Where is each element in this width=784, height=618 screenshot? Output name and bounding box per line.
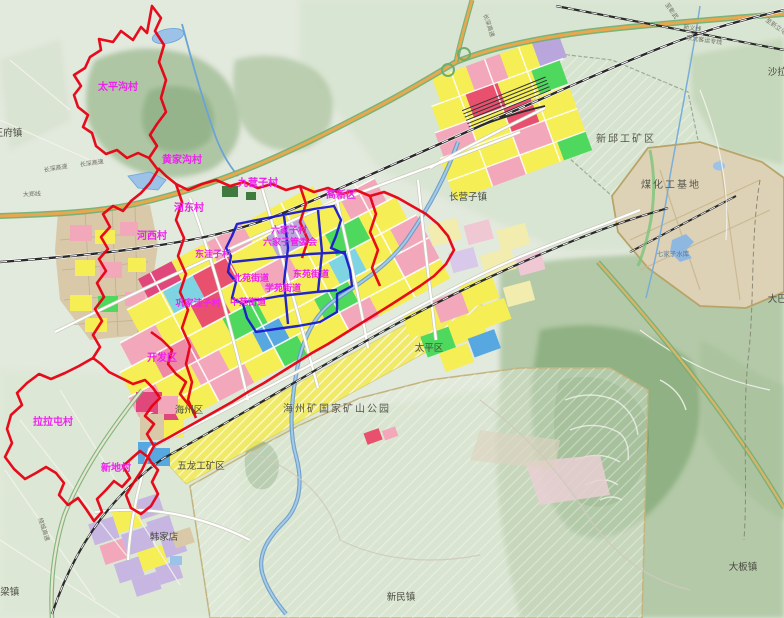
label-daban: 大板镇 [729,561,758,573]
planning-map-viewport: 太平沟村 黄家沟村 九营子村 河东村 河西村 六家子村 六家子管委会 东洼子村 … [0,0,784,618]
planning-map: 太平沟村 黄家沟村 九营子村 河东村 河西村 六家子村 六家子管委会 东洼子村 … [0,0,784,618]
label-daba: 大巴镇 [768,293,784,305]
pond-south [170,556,182,565]
label-gaoxin: 高新区 [326,188,356,201]
label-beiyuan: 北苑街道 [233,272,269,283]
label-meihua-zone: 煤化工基地 [641,178,701,191]
label-dongyuan: 东苑街道 [293,268,329,279]
label-hedong: 河东村 [174,201,204,214]
label-hexi: 河西村 [137,229,167,242]
label-liujiazi-mc: 六家子管委会 [263,236,318,247]
label-xindi: 新地村 [101,461,131,474]
label-liujiazi: 六家子村 [271,224,307,235]
label-changyingzi: 长营子镇 [449,191,488,203]
label-wulong-zone: 五龙工矿区 [177,460,225,472]
label-xueyuan: 学苑街道 [265,282,301,293]
label-jiuyingzi: 九营子村 [237,176,278,189]
label-taiping-qu: 太平区 [415,342,444,354]
label-kaifa: 开发区 [147,351,177,364]
label-dongliang: 东梁镇 [0,586,20,598]
label-xinmin: 新民镇 [387,591,416,603]
label-lalatun: 拉拉屯村 [33,415,73,428]
label-xinqiu-zone: 新邱工矿区 [596,132,656,145]
label-taipinggou: 太平沟村 [97,80,138,93]
label-dongwazi: 东洼子村 [195,248,231,259]
label-wangfu: 王府镇 [0,127,23,139]
label-shala: 沙拉镇 [768,66,784,78]
label-zhongyuan: 中苑街道 [230,296,266,307]
label-gongjiawazi: 巩家洼子村 [175,297,220,308]
label-haizhou-park: 海州矿国家矿山公园 [283,402,391,415]
label-qijiazi-reservoir: 七家子水库 [657,249,690,258]
label-huangjiagou: 黄家沟村 [162,153,202,166]
label-hanjiadian: 韩家店 [150,531,179,543]
label-haizhou-qu: 海州区 [175,404,204,416]
